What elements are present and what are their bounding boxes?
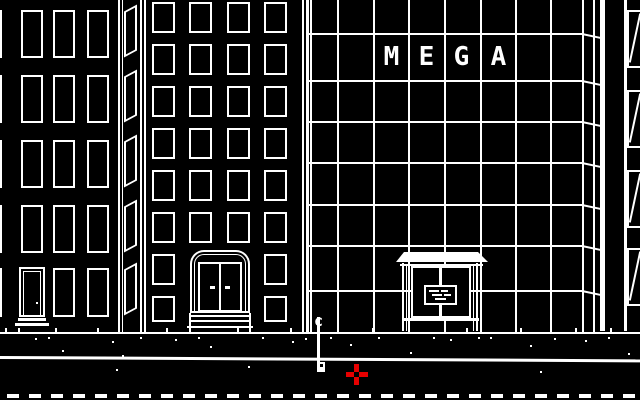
dash — [139, 394, 151, 398]
dash — [161, 394, 173, 398]
tick — [290, 328, 292, 332]
dash — [403, 394, 415, 398]
speck — [210, 346, 212, 348]
window — [189, 44, 212, 75]
left-building-corner-line — [118, 0, 120, 332]
window — [264, 44, 287, 75]
side-window — [124, 70, 137, 123]
sidewalk-top-line — [0, 332, 640, 334]
speck — [175, 339, 177, 341]
side-window — [124, 200, 137, 253]
grid-horizontal — [306, 80, 582, 82]
speck — [330, 337, 332, 339]
window — [53, 140, 75, 188]
speck — [112, 341, 114, 343]
dash — [535, 394, 547, 398]
mega-building-right-corner — [600, 0, 605, 331]
window — [152, 2, 175, 33]
speck — [554, 338, 556, 340]
right-building-edge — [624, 0, 627, 331]
mega-store-awning — [396, 252, 488, 262]
mega-letter: M — [374, 45, 409, 69]
mega-letter: G — [444, 45, 479, 69]
window — [264, 296, 287, 322]
dash — [51, 394, 63, 398]
dash — [447, 394, 459, 398]
window — [87, 268, 109, 317]
window — [21, 75, 43, 123]
window — [264, 128, 287, 159]
dash — [557, 394, 569, 398]
dash — [227, 394, 239, 398]
window — [152, 128, 175, 159]
speck — [433, 337, 435, 339]
dash — [601, 394, 613, 398]
tick — [18, 328, 20, 332]
window — [87, 10, 109, 58]
mega-store-post-right-inner — [473, 266, 474, 331]
mega-letter: A — [481, 45, 516, 69]
speck — [35, 338, 37, 340]
window — [87, 140, 109, 188]
window — [87, 75, 109, 123]
mid-building-door-handle-left — [210, 286, 215, 289]
dash — [183, 394, 195, 398]
dash — [73, 394, 85, 398]
mid-building-step-1 — [191, 315, 249, 317]
mid-building-door-threshold — [190, 311, 250, 313]
window — [189, 86, 212, 117]
mid-building-left-edge-2 — [144, 0, 146, 333]
grid-horizontal-slant — [582, 290, 601, 296]
game-viewport[interactable]: MEGA c — [0, 0, 640, 400]
speck — [530, 345, 532, 347]
window — [152, 44, 175, 75]
window — [21, 205, 43, 253]
dash — [491, 394, 503, 398]
tick — [237, 328, 239, 332]
dash — [7, 394, 19, 398]
window — [189, 212, 212, 243]
mid-building-step-rail-right — [249, 313, 251, 332]
speck — [410, 352, 412, 354]
window — [264, 170, 287, 201]
speck — [628, 353, 630, 355]
grid-horizontal — [306, 33, 582, 35]
window — [264, 212, 287, 243]
dash — [623, 394, 635, 398]
speck — [450, 339, 452, 341]
tick — [5, 328, 7, 332]
window — [53, 10, 75, 58]
mid-building-door-mullion — [219, 262, 221, 312]
left-building-corner-line-2 — [122, 0, 123, 332]
window — [189, 170, 212, 201]
window — [53, 205, 75, 253]
speck — [48, 337, 50, 339]
grid-horizontal-slant — [582, 162, 601, 168]
left-building-door-panel — [23, 271, 41, 317]
mega-letter: E — [409, 45, 444, 69]
street-dot — [116, 369, 118, 371]
speck — [62, 350, 64, 352]
window — [264, 254, 287, 285]
street-dot — [248, 366, 250, 368]
window — [0, 75, 2, 123]
dash — [117, 394, 129, 398]
window — [227, 2, 250, 33]
tick — [466, 328, 468, 332]
grid-horizontal-slant — [582, 204, 601, 210]
speck — [478, 337, 480, 339]
window — [0, 140, 2, 188]
speck — [262, 337, 264, 339]
speck — [198, 337, 200, 339]
side-window — [124, 135, 137, 188]
left-building-door[interactable] — [19, 267, 45, 317]
window — [53, 268, 75, 317]
window — [227, 44, 250, 75]
speck — [140, 337, 142, 339]
speck — [608, 337, 610, 339]
mid-building-step-rail-left — [189, 313, 191, 332]
grid-horizontal — [306, 121, 582, 123]
grid-horizontal-slant — [582, 121, 601, 127]
speck — [490, 337, 492, 339]
window — [0, 205, 2, 253]
mid-building-step-2 — [189, 320, 251, 322]
side-window — [124, 5, 137, 58]
window — [0, 10, 2, 58]
tick — [97, 328, 99, 332]
window — [227, 170, 250, 201]
crosshair-cursor[interactable] — [346, 364, 368, 385]
dash — [95, 394, 107, 398]
window — [264, 2, 287, 33]
grid-vertical — [310, 0, 312, 332]
grid-horizontal — [306, 204, 582, 206]
speck — [378, 337, 380, 339]
mid-building-right-edge — [302, 0, 304, 333]
dash — [381, 394, 393, 398]
mid-building-door-handle-right — [225, 286, 230, 289]
dash — [29, 394, 41, 398]
side-window — [124, 263, 137, 316]
speck — [585, 340, 587, 342]
mega-store-post-left-inner — [406, 266, 407, 331]
tick — [55, 328, 57, 332]
window — [152, 170, 175, 201]
window — [189, 2, 212, 33]
pole-label: c — [314, 315, 323, 328]
window — [152, 296, 175, 322]
grid-vertical — [550, 0, 552, 332]
tick — [575, 328, 577, 332]
dash — [579, 394, 591, 398]
mega-building-left-corner — [306, 0, 309, 334]
mega-store-door-sign — [424, 285, 457, 305]
grid-horizontal-slant — [582, 245, 601, 251]
dash — [271, 394, 283, 398]
mega-store-threshold — [403, 318, 479, 321]
window — [227, 86, 250, 117]
dash — [337, 394, 349, 398]
street-dot — [540, 371, 542, 373]
dash — [469, 394, 481, 398]
dash — [205, 394, 217, 398]
mid-building-step-3 — [187, 326, 253, 328]
sign-pole-foot-notch — [320, 364, 323, 367]
window — [87, 205, 109, 253]
tick — [610, 328, 612, 332]
tick — [166, 328, 168, 332]
speck — [292, 341, 294, 343]
window — [152, 212, 175, 243]
crosshair-center — [354, 372, 359, 377]
window — [189, 128, 212, 159]
window — [152, 254, 175, 285]
grid-vertical — [337, 0, 339, 332]
window — [227, 128, 250, 159]
window — [0, 268, 2, 317]
grid-horizontal-slant — [582, 80, 601, 86]
dash — [513, 394, 525, 398]
dash — [315, 394, 327, 398]
window — [21, 140, 43, 188]
dash — [293, 394, 305, 398]
grid-horizontal — [306, 162, 582, 164]
window — [152, 86, 175, 117]
window — [264, 86, 287, 117]
mid-building-left-edge — [140, 0, 142, 333]
dash — [425, 394, 437, 398]
tick — [520, 328, 522, 332]
grid-horizontal — [306, 245, 582, 247]
left-building-step-2 — [15, 323, 49, 326]
speck — [305, 338, 307, 340]
window — [53, 75, 75, 123]
grid-vertical — [582, 0, 584, 332]
dash — [249, 394, 261, 398]
grid-horizontal-slant — [582, 33, 601, 39]
window — [21, 10, 43, 58]
tick — [372, 328, 374, 332]
dash — [359, 394, 371, 398]
window — [227, 212, 250, 243]
left-building-step-1 — [18, 318, 46, 321]
left-building-door-knob — [36, 302, 38, 304]
speck — [350, 344, 352, 346]
